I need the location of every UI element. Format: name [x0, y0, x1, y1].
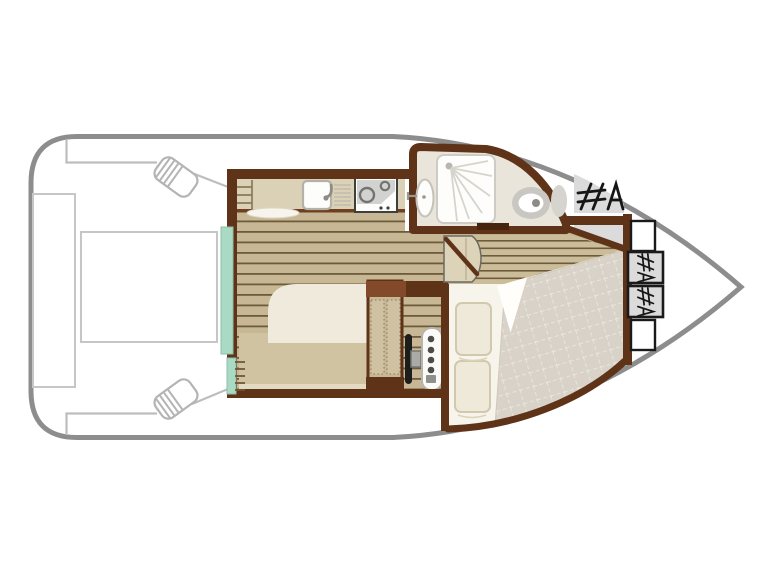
gauge-dot — [428, 367, 435, 374]
helm-station — [405, 328, 442, 390]
wardrobe-door-left — [371, 300, 384, 374]
patio-door — [221, 227, 233, 354]
bow-step-locker — [628, 252, 663, 283]
sink — [303, 181, 331, 209]
galley — [237, 178, 405, 218]
stove-knob — [379, 206, 382, 209]
counter-plate — [247, 208, 299, 218]
bathroom — [408, 147, 567, 230]
pillow — [455, 361, 490, 412]
throttle — [426, 375, 436, 383]
cistern — [551, 185, 567, 217]
pillow — [456, 303, 491, 355]
stove — [355, 178, 397, 212]
bow-cabin-left-wall — [441, 284, 449, 431]
bow-step-locker — [628, 286, 663, 317]
floor-plan-canvas — [0, 0, 768, 576]
companionway-steps — [444, 236, 481, 282]
shower — [437, 155, 495, 223]
side-bench — [33, 194, 75, 387]
sofa-cushion — [268, 284, 367, 343]
gauge-dot — [428, 347, 435, 354]
bow-locker — [631, 221, 655, 251]
boat-floor-plan — [0, 0, 768, 576]
gauge-dot — [428, 357, 435, 364]
cockpit-table — [81, 232, 217, 342]
cabinet-top-cap — [366, 281, 406, 297]
galley-top-wall — [227, 169, 417, 179]
bow-locker — [631, 320, 655, 350]
stove-knob — [386, 206, 389, 209]
patio-door-lower — [227, 358, 236, 394]
toilet — [512, 185, 567, 219]
gauge-dot — [428, 336, 435, 343]
bathroom-door — [477, 223, 509, 230]
saloon-bottom-wall — [227, 389, 449, 398]
bow-bulkhead-horizontal — [564, 216, 630, 225]
wheel-hub — [411, 351, 421, 367]
faucet-base — [323, 195, 328, 200]
wardrobe-door-right — [387, 300, 400, 374]
